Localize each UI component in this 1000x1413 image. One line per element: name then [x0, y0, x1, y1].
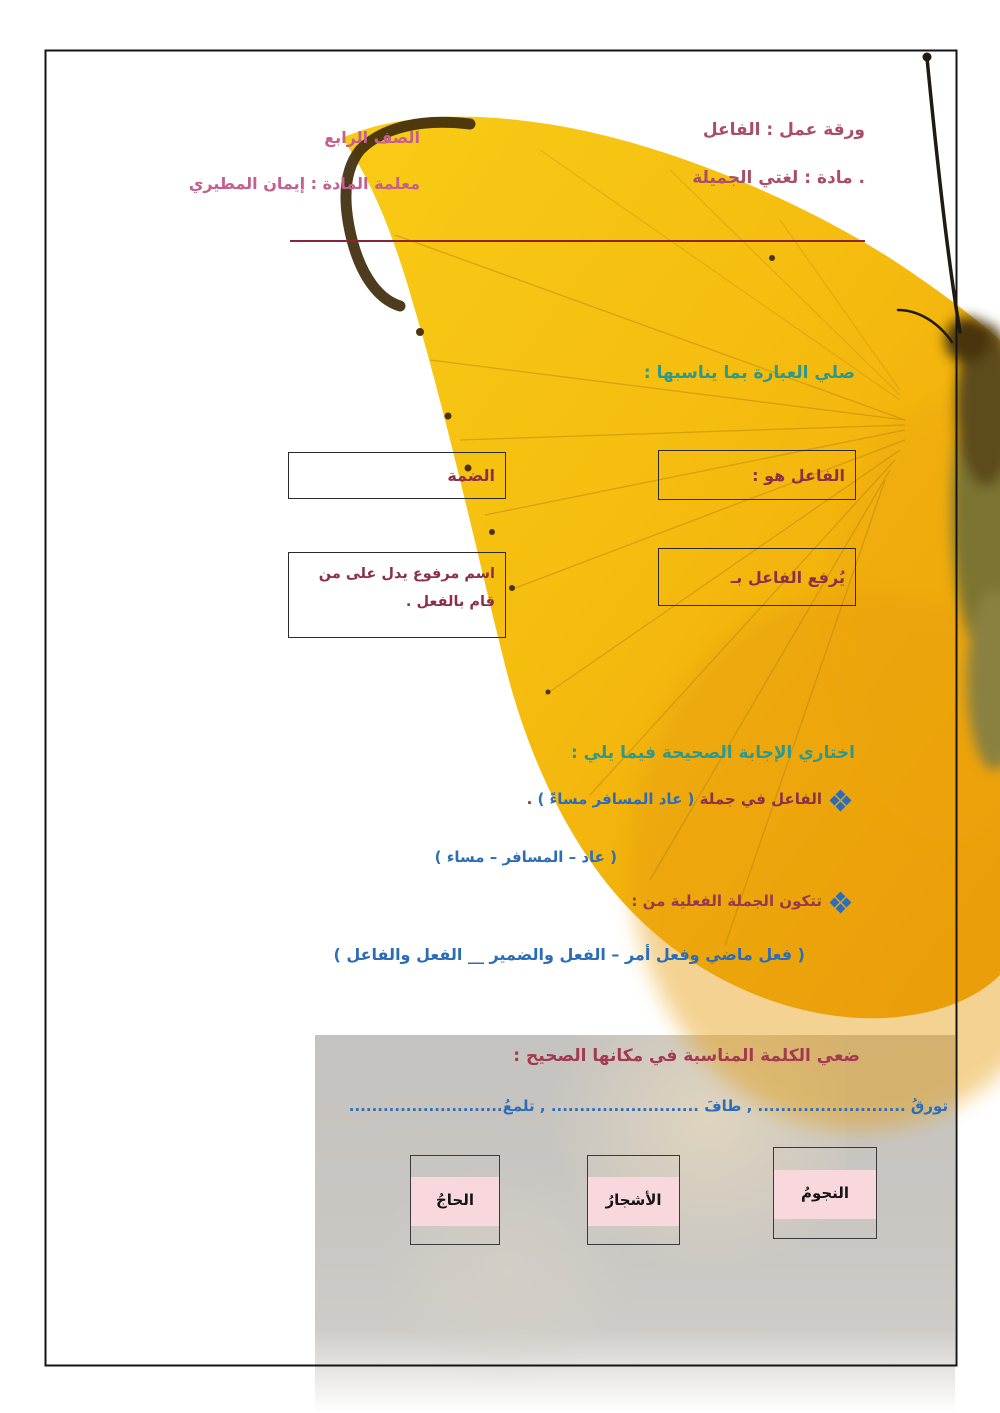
subject-line: . مادة : لغتي الجميلة: [692, 168, 865, 188]
match-box-faail-huwa[interactable]: الفاعل هو :: [658, 450, 856, 500]
worksheet-title: ورقة عمل : الفاعل: [703, 120, 865, 140]
question-2-text: تتكون الجملة الفعلية من :: [631, 892, 822, 910]
match-box-damma[interactable]: الضمة: [288, 452, 506, 499]
header-divider-line: [290, 240, 865, 242]
question-1-options: ( عاد – المسافر – مساء ): [435, 848, 617, 866]
wing-tip-dark-edge: [346, 122, 470, 306]
match-box-ism-marfoo[interactable]: اسم مرفوع يدل على من قام بالفعل .: [288, 552, 506, 638]
word-tile-label: النجومُ: [774, 1148, 876, 1238]
match-box-label: يُرفع الفاعل بـ: [731, 568, 845, 587]
question-2: تتكون الجملة الفعلية من :: [631, 892, 850, 912]
match-box-label: اسم مرفوع يدل على من قام بالفعل .: [319, 566, 495, 610]
word-tile-label: الأشجارُ: [588, 1156, 679, 1244]
teacher-line: معلمة المادة : إيمان المطيري: [189, 174, 420, 193]
question-2-options: ( فعل ماضي وفعل أمر – الفعل والضمير __ ا…: [333, 945, 805, 964]
word-tile-label: الحاجُ: [411, 1156, 499, 1244]
match-section-title: صلي العبارة بما يناسبها :: [644, 363, 855, 383]
word-tile-trees[interactable]: الأشجارُ: [587, 1155, 680, 1245]
question-1-text: الفاعل في جملة ( عاد المسافر مساءً ) .: [527, 790, 822, 808]
match-box-yurfaa-bi[interactable]: يُرفع الفاعل بـ: [658, 548, 856, 606]
fill-section-title: ضعي الكلمة المناسبة في مكانها الصحيح :: [513, 1046, 860, 1066]
question-1: الفاعل في جملة ( عاد المسافر مساءً ) .: [527, 790, 850, 810]
question-1-sentence: ( عاد المسافر مساءً ): [537, 790, 694, 808]
choose-section-title: اختاري الإجابة الصحيحة فيما يلي :: [571, 743, 855, 763]
word-tile-stars[interactable]: النجومُ: [773, 1147, 877, 1239]
fill-blanks-line: تورقُ .......................... , طافَ …: [349, 1097, 948, 1115]
word-tile-pilgrim[interactable]: الحاجُ: [410, 1155, 500, 1245]
butterfly-antenna: [898, 53, 960, 343]
diamond-bullet-icon: [831, 893, 850, 912]
diamond-bullet-icon: [831, 791, 850, 810]
butterfly-body: [945, 317, 1000, 770]
match-box-label: الضمة: [447, 466, 495, 485]
match-box-label: الفاعل هو :: [752, 466, 845, 485]
grade-line: الصف الرابع: [324, 128, 420, 147]
worksheet-page: ورقة عمل : الفاعل . مادة : لغتي الجميلة …: [0, 0, 1000, 1413]
question-1-period: .: [527, 790, 538, 808]
question-1-prefix: الفاعل في جملة: [694, 790, 822, 808]
